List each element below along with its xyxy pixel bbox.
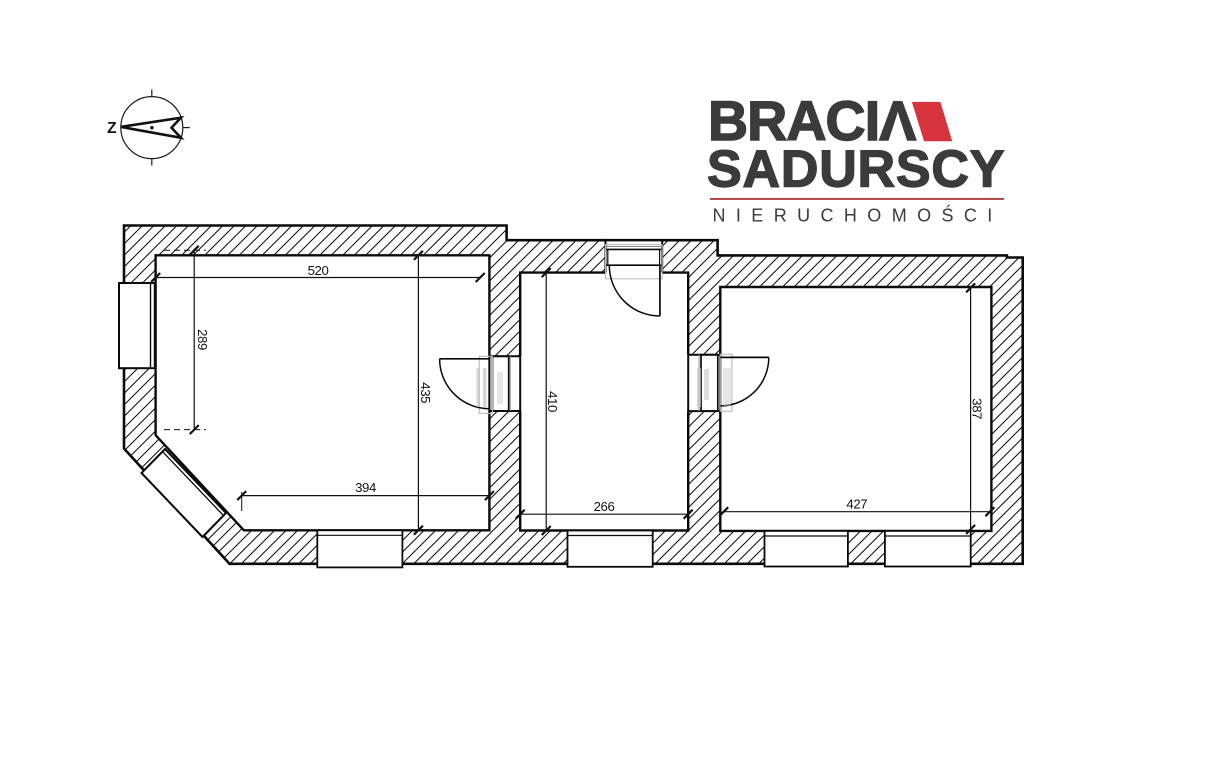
svg-text:427: 427 bbox=[846, 497, 867, 512]
svg-text:289: 289 bbox=[195, 329, 210, 350]
svg-text:SADURSCY: SADURSCY bbox=[707, 140, 1005, 198]
svg-text:520: 520 bbox=[308, 263, 329, 278]
svg-text:Z: Z bbox=[107, 120, 117, 137]
svg-text:410: 410 bbox=[545, 391, 560, 412]
svg-text:435: 435 bbox=[418, 382, 433, 403]
svg-text:387: 387 bbox=[969, 398, 984, 419]
svg-text:394: 394 bbox=[355, 480, 376, 495]
svg-text:NIERUCHOMOŚCI: NIERUCHOMOŚCI bbox=[713, 205, 1003, 226]
svg-text:266: 266 bbox=[594, 499, 615, 514]
